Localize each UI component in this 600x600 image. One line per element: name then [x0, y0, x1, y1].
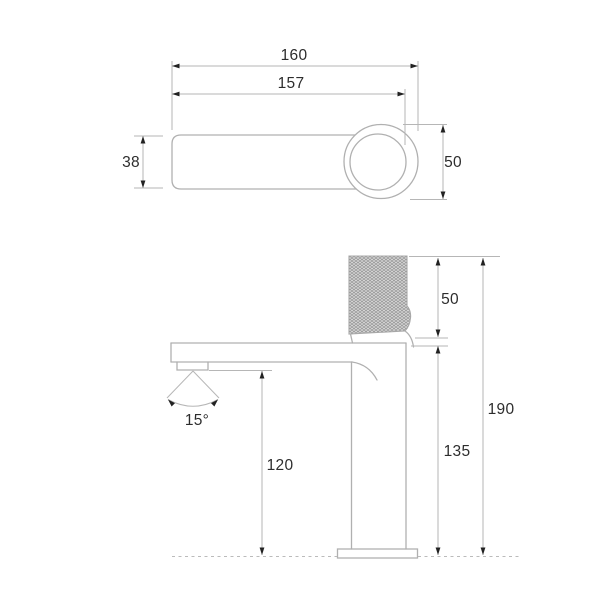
arrowhead	[436, 258, 441, 266]
base-plate	[338, 549, 418, 558]
arrowhead	[436, 346, 441, 354]
dimension-handle-height: 50	[409, 257, 500, 339]
dim-label-total-length: 160	[281, 47, 308, 64]
spray-angle-annotation: 15°	[166, 371, 219, 429]
dim-label-spray-angle: 15°	[185, 412, 209, 429]
arrowhead	[436, 330, 441, 338]
dimension-spout-height: 120	[209, 371, 293, 556]
faucet-technical-drawing: 160 157 38 50	[0, 0, 600, 600]
dimension-lever-width: 38	[122, 136, 163, 188]
dimension-body-diameter: 50	[403, 125, 462, 200]
body-fillet-curve	[352, 362, 377, 380]
arrowhead	[441, 192, 446, 200]
arrowhead	[260, 548, 265, 556]
arrowhead	[441, 125, 446, 133]
dim-label-lever-reach: 157	[278, 75, 305, 92]
side-view: 15° 50 135 190	[166, 256, 520, 558]
dim-label-body-height: 135	[444, 443, 471, 460]
dimension-body-height: 135	[411, 346, 470, 555]
dimension-total-height: 190	[481, 258, 515, 555]
dim-label-lever-width: 38	[122, 154, 140, 171]
lever-outline	[172, 135, 356, 189]
arrowhead	[172, 64, 180, 69]
arrowhead	[411, 64, 419, 69]
arrowhead	[398, 92, 406, 97]
arrowhead	[141, 181, 146, 189]
arrowhead	[141, 136, 146, 144]
aerator-outline	[177, 362, 208, 370]
arrowhead	[481, 258, 486, 266]
dim-label-body-diameter: 50	[444, 154, 462, 171]
body-inner-circle	[350, 134, 406, 190]
top-view: 160 157 38 50	[122, 47, 462, 200]
dim-label-spout-height: 120	[267, 457, 294, 474]
arrowhead	[172, 92, 180, 97]
arrowhead	[436, 548, 441, 556]
arrowhead	[481, 548, 486, 556]
body-outer-circle	[344, 125, 418, 199]
dim-label-total-height: 190	[488, 401, 515, 418]
handle-neck-left	[351, 334, 353, 343]
technical-drawing-canvas: 160 157 38 50	[0, 0, 600, 600]
dim-label-handle-height: 50	[441, 291, 459, 308]
arrowhead	[260, 371, 265, 379]
knurled-handle	[349, 256, 411, 334]
